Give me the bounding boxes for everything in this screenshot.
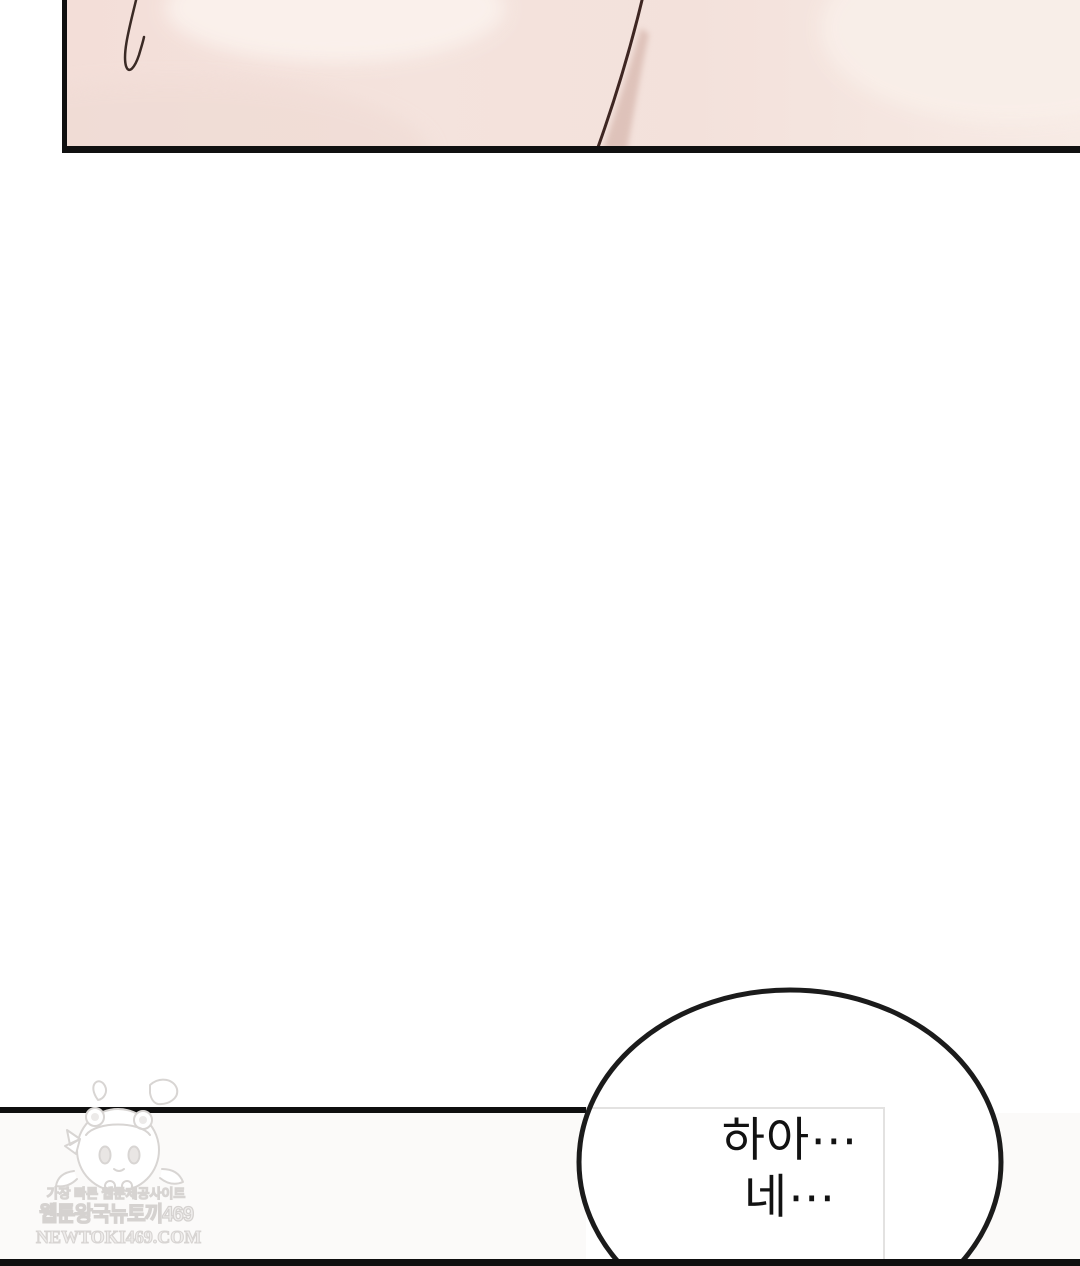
panel-bottom-border [62,146,1080,153]
panel-border-bottom-line [0,1259,1080,1266]
mascot-ear-right [150,1080,177,1104]
webtoon-page: 가장 빠른 웹툰제공사이트 웹툰왕국뉴토끼469 NEWTOKI469.COM … [0,0,1080,1266]
speech-line-2: 네⋯ [590,1168,990,1225]
speech-bubble-outline [0,0,1080,1266]
skin-artwork [0,0,1080,153]
speech-bubble-shape [0,0,1080,1266]
panel-left-border [62,0,67,153]
panel-border-top-line [0,1107,587,1113]
mascot-ear-left [93,1081,106,1100]
speech-bubble-text: 하아⋯ 네⋯ [590,1111,990,1225]
site-watermark: 가장 빠른 웹툰제공사이트 웹툰왕국뉴토끼469 NEWTOKI469.COM [0,0,1080,1266]
panel-artwork-top [0,0,1080,153]
speech-line-1: 하아⋯ [590,1111,990,1168]
